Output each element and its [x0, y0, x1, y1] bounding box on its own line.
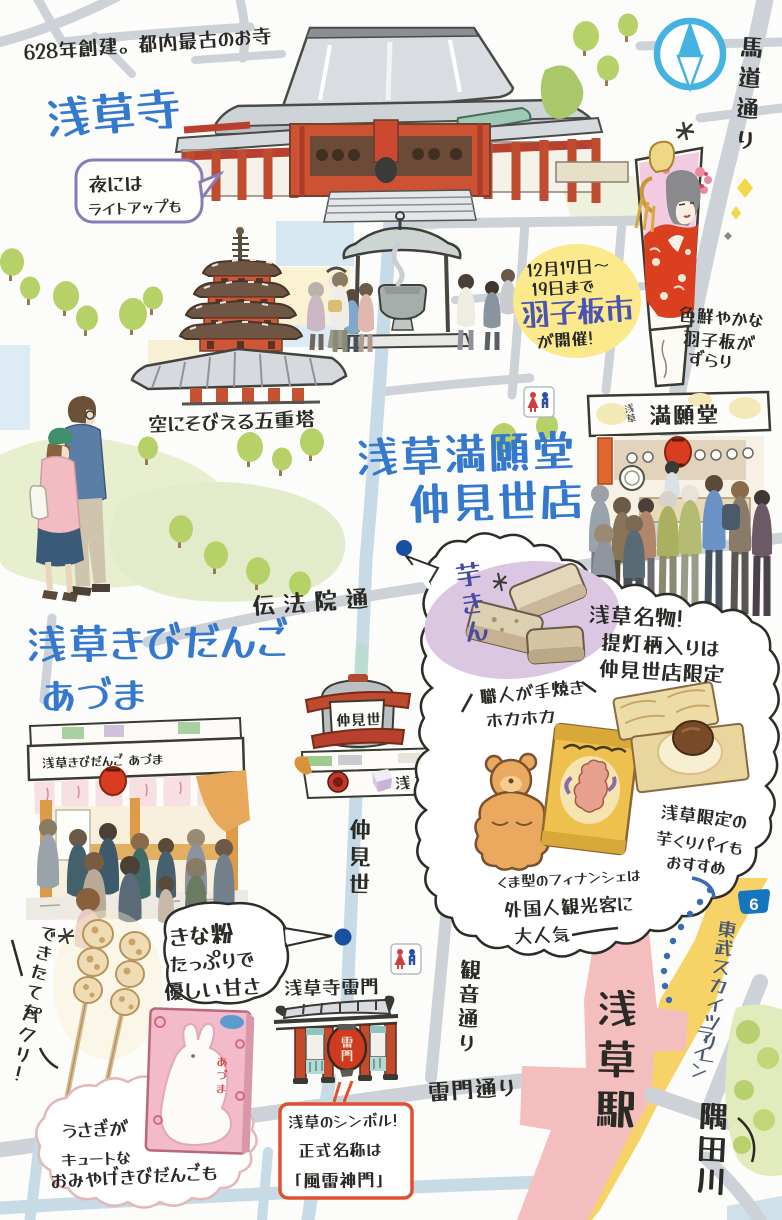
- svg-text:6: 6: [749, 895, 758, 914]
